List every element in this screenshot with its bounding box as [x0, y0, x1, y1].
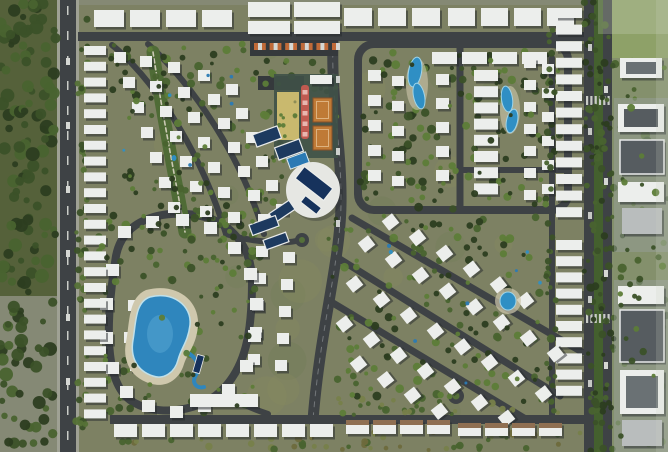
- bottom-townhouses-east-0-roof: [458, 423, 481, 428]
- forest-left-trees-140: [1, 413, 7, 419]
- left-road-lane-dashes-4: [67, 106, 69, 115]
- southwest-trees-51: [168, 276, 176, 284]
- northeast-trees-86: [449, 205, 456, 212]
- right-road-trees-100: [594, 145, 599, 150]
- southwest-ring-villas-6: [250, 298, 263, 310]
- forest-left-trees-50: [1, 89, 15, 103]
- forest-left-trees-28: [41, 42, 51, 52]
- left-townhouse-column-14: [84, 267, 106, 276]
- northeast-accent-trees-3: [373, 190, 378, 195]
- right-road-trees-99: [608, 425, 613, 430]
- northeast-trees-117: [459, 76, 467, 84]
- forest-left-trees-101: [21, 108, 28, 115]
- garden-pools-northwest-3: [168, 93, 172, 97]
- right-edge-trees-45: [632, 87, 637, 92]
- forest-left-trees-98: [21, 121, 28, 128]
- southwest-accent-trees-16: [246, 300, 250, 304]
- commercial-building-b: [294, 2, 340, 17]
- southeast-trees-39: [334, 376, 341, 383]
- east-verge-trees-15: [547, 164, 554, 171]
- east-townhouse-column-north-2: [556, 41, 582, 51]
- southwest-accent-trees-18: [219, 321, 224, 326]
- northeast-trees-52: [360, 114, 366, 120]
- right-road-trees-105: [594, 73, 599, 78]
- center-trees-13: [309, 59, 316, 66]
- southwest-accent-trees-8: [128, 246, 134, 252]
- northwest-trees-76: [163, 141, 169, 147]
- northeast-villas-col4-3: [524, 124, 536, 134]
- southwest-trees-67: [199, 295, 203, 299]
- parking-cars-orange-6: [301, 43, 305, 50]
- northeast-apartment-strip-2: [474, 102, 498, 113]
- forest-left-trees-108: [30, 439, 38, 447]
- northwest-accent-trees-19: [115, 63, 119, 67]
- southeast-accent-trees-2: [447, 394, 453, 400]
- forest-left-trees-133: [42, 168, 49, 175]
- cars-left-road-1: [66, 122, 70, 129]
- east-townhouse-column-north-12: [556, 207, 582, 217]
- parking-cars-white-0: [258, 43, 262, 50]
- northwest-trees-90: [239, 41, 246, 48]
- southwest-trees-66: [185, 371, 191, 377]
- crosswalk-right-road-north-0: [586, 96, 588, 105]
- left-townhouse-column-7: [84, 157, 106, 166]
- bottom-townhouses-west-7: [310, 424, 333, 437]
- northeast-trees-60: [465, 93, 472, 100]
- northwest-villas-col5-0: [226, 84, 238, 95]
- forest-left-trees-79: [40, 185, 51, 196]
- northwest-villas-col3-6: [228, 212, 240, 223]
- left-verge-trees-34: [72, 417, 80, 425]
- southwest-trees-69: [115, 404, 123, 412]
- southwest-ring-villas-5: [244, 268, 257, 280]
- cars-left-road-4: [66, 314, 70, 321]
- northeast-trees-48: [462, 122, 470, 130]
- northwest-accent-trees-23: [156, 221, 162, 227]
- bottom-edge-trees-39: [368, 446, 372, 450]
- southeast-trees-110: [534, 367, 539, 372]
- garden-pools-northwest-0: [206, 74, 209, 77]
- left-road-lane-dashes-8: [67, 206, 69, 215]
- left-townhouse-column-11: [84, 220, 106, 229]
- right-road-trees-82: [605, 98, 610, 103]
- right-road-trees-101: [608, 405, 614, 411]
- right-road-trees-18: [608, 115, 614, 121]
- southeast-trees-77: [404, 219, 408, 223]
- northwest-trees-29: [110, 212, 118, 220]
- forest-left-trees-60: [12, 161, 18, 167]
- left-road-lane-dashes-3: [67, 81, 69, 90]
- east-verge-trees-30: [546, 278, 550, 282]
- commercial-building-d: [294, 21, 340, 34]
- southeast-trees-99: [535, 320, 539, 324]
- garden-pools-southeast-2: [515, 269, 518, 272]
- southeast-trees-74: [500, 241, 507, 248]
- northwest-trees-62: [210, 51, 218, 59]
- garden-pools-northwest-1: [188, 163, 192, 167]
- garden-pools-southeast-6: [465, 301, 469, 305]
- southeast-trees-88: [340, 263, 349, 272]
- forest-left-trees-100: [40, 76, 53, 89]
- right-road-trees-20: [593, 21, 597, 25]
- crosswalk-right-road-north-1: [590, 96, 592, 105]
- northwest-accent-trees-21: [158, 203, 165, 210]
- cars-right-road-1-0: [588, 44, 592, 51]
- left-road-lane-dashes-9: [67, 231, 69, 240]
- northeast-trees-67: [539, 178, 544, 183]
- cars-left-road-5: [66, 378, 70, 385]
- east-verge-trees-24: [545, 220, 552, 227]
- southwest-accent-trees-0: [183, 350, 190, 357]
- northeast-villas-col4-0: [524, 58, 536, 68]
- northwest-villas-col5-3: [256, 156, 268, 167]
- southwest-ring-villas-3: [204, 222, 217, 234]
- garden-pools-southeast-4: [413, 339, 417, 343]
- northwest-trees-14: [127, 116, 131, 120]
- northeast-trees-49: [384, 59, 392, 67]
- southeast-trees-101: [457, 322, 464, 329]
- southeast-trees-42: [526, 254, 533, 261]
- northeast-apartment-strip-3: [474, 119, 498, 130]
- forest-left-trees-149: [48, 298, 57, 307]
- east-verge-trees-16: [546, 376, 551, 381]
- northeast-accent-trees-22: [501, 178, 506, 183]
- northwest-accent-trees-8: [122, 173, 128, 179]
- right-road-trees-0: [588, 65, 593, 70]
- forest-left-trees-2: [45, 99, 57, 111]
- right-road-trees-3: [599, 331, 607, 339]
- east-verge-trees-25: [545, 291, 549, 295]
- right-road-trees-93: [591, 162, 595, 166]
- east-townhouse-column-south-3: [556, 289, 582, 299]
- northwest-villas-col3-4: [208, 162, 220, 173]
- southeast-trees-104: [365, 319, 373, 327]
- bottom-edge-trees-37: [340, 447, 345, 452]
- forest-left-trees-122: [11, 349, 24, 362]
- right-road-trees-64: [605, 216, 611, 222]
- right-road-trees-58: [583, 145, 590, 152]
- play-sand-shrubs-7: [294, 100, 297, 103]
- forest-left-trees-109: [5, 125, 13, 133]
- southwest-ring-villas-12: [142, 400, 155, 412]
- midbottom-trees-29: [338, 401, 342, 405]
- northwest-trees-27: [187, 80, 195, 88]
- top-apartments-west-2: [166, 10, 196, 27]
- parking-cars-white-1: [274, 43, 278, 50]
- southwest-accent-trees-4: [232, 308, 237, 313]
- southeast-trees-113: [493, 311, 499, 317]
- northwest-accent-trees-22: [164, 223, 170, 229]
- northeast-trees-56: [458, 91, 464, 97]
- right-accent-trees-8: [651, 245, 656, 250]
- left-townhouse-column-20: [84, 362, 106, 371]
- top-apartments-east-1: [481, 8, 508, 26]
- running-track-marks-4: [303, 132, 308, 137]
- southeast-accent-trees-6: [380, 343, 385, 348]
- southeast-trees-37: [446, 272, 452, 278]
- southeast-accent-trees-12: [499, 234, 506, 241]
- cars-right-road-1-4: [588, 380, 592, 387]
- forest-left-trees-65: [2, 66, 11, 75]
- southwest-trees-82: [157, 248, 163, 254]
- forest-left-trees-78: [8, 42, 14, 48]
- forest-left-trees-124: [35, 269, 49, 283]
- right-road-trees-86: [605, 382, 610, 387]
- haze-right-edge: [656, 0, 668, 452]
- right-road-trees-76: [607, 264, 611, 268]
- northeast-villas-col3-4: [436, 170, 449, 181]
- left-road-lane-dashes-16: [67, 406, 69, 415]
- northeast-villas-col1-0: [368, 70, 381, 81]
- southeast-trees-112: [366, 228, 371, 233]
- left-townhouse-column-8: [84, 172, 106, 181]
- midbottom-trees-25: [453, 409, 457, 413]
- northwest-accent-trees-14: [203, 180, 209, 186]
- midbottom-trees-23: [551, 408, 557, 414]
- east-townhouse-column-north-0: [556, 8, 582, 18]
- east-townhouse-column-north-5: [556, 91, 582, 101]
- southwest-accent-trees-6: [99, 243, 106, 250]
- center-south-villas-col2-3: [277, 333, 289, 344]
- top-apartments-west-1: [130, 10, 160, 27]
- east-townhouse-column-south-5: [556, 321, 582, 331]
- southeast-trees-59: [331, 275, 335, 279]
- parking-cars-orange-0: [254, 43, 258, 50]
- east-townhouse-column-south-9: [556, 386, 582, 396]
- left-road-lane-dashes-17: [67, 431, 69, 440]
- southeast-trees-78: [452, 359, 457, 364]
- southwest-trees-38: [229, 269, 237, 277]
- northwest-trees-83: [199, 100, 206, 107]
- southeast-trees-35: [423, 225, 428, 230]
- southeast-accent-trees-13: [515, 377, 520, 382]
- right-road-trees-62: [584, 116, 588, 120]
- southeast-trees-11: [471, 237, 477, 243]
- southwest-trees-22: [211, 310, 216, 315]
- running-track-marks-2: [303, 111, 308, 116]
- southeast-trees-83: [348, 227, 354, 233]
- northeast-accent-trees-20: [508, 191, 513, 196]
- northwest-trees-51: [240, 47, 246, 53]
- southwest-accent-trees-14: [217, 388, 221, 392]
- southeast-trees-82: [368, 387, 373, 392]
- forest-left-trees-141: [14, 334, 28, 348]
- parking-cars-orange-1: [262, 43, 266, 50]
- midbottom-trees-11: [383, 407, 387, 411]
- southwest-trees-65: [140, 273, 147, 280]
- northwest-trees-52: [152, 187, 156, 191]
- bottom-townhouses-east-3-roof: [539, 423, 562, 428]
- cars-right-road-1-1: [588, 128, 592, 135]
- top-apartments-west-0: [94, 10, 124, 27]
- southwest-accent-trees-7: [203, 258, 209, 264]
- northwest-villas-col4-1: [208, 94, 220, 105]
- southeast-trees-97: [482, 321, 489, 328]
- northeast-accent-trees-13: [362, 126, 369, 133]
- east-verge-trees-12: [553, 374, 558, 379]
- northeast-villas-col4-2: [524, 102, 536, 112]
- top-apartments-mid-2: [412, 8, 440, 26]
- southwest-accent-trees-2: [159, 315, 165, 321]
- right-road-trees-77: [603, 318, 610, 325]
- right-edge-trees-37: [618, 274, 624, 280]
- southeast-accent-trees-16: [522, 253, 526, 257]
- northwest-villas-col2-2: [160, 106, 172, 117]
- parking-cars-orange-5: [293, 43, 297, 50]
- play-sand-shrubs-6: [279, 113, 283, 117]
- center-trees-20: [320, 68, 326, 74]
- northwest-accent-trees-6: [202, 144, 207, 149]
- left-road-lane-dashes-12: [67, 306, 69, 315]
- left-verge-trees-25: [76, 397, 83, 404]
- forest-left-trees-85: [18, 258, 24, 264]
- east-verge-trees-28: [549, 234, 555, 240]
- southeast-accent-trees-27: [407, 275, 413, 281]
- southwest-trees-76: [218, 238, 223, 243]
- right-road-trees-56: [609, 170, 615, 176]
- right-road-trees-52: [599, 402, 607, 410]
- southwest-trees-31: [117, 258, 124, 265]
- left-verge-trees-2: [74, 282, 81, 289]
- southeast-trees-111: [492, 383, 500, 391]
- east-townhouse-column-south-1: [556, 256, 582, 266]
- southeast-trees-23: [484, 379, 491, 386]
- southeast-accent-trees-11: [346, 368, 351, 373]
- bottom-edge-trees-21: [323, 444, 329, 450]
- northwest-trees-66: [194, 62, 203, 71]
- left-road-lane-dashes-10: [67, 256, 69, 265]
- lagoon-shallow: [147, 315, 173, 353]
- northeast-villas-col3-0: [436, 74, 449, 85]
- east-townhouse-column-north-11: [556, 191, 582, 201]
- midbottom-trees-8: [414, 404, 419, 409]
- northeast-trees-68: [390, 187, 394, 191]
- northwest-trees-5: [176, 170, 182, 176]
- right-road-trees-71: [591, 115, 598, 122]
- right-accent-trees-6: [633, 326, 639, 332]
- forest-left-trees-143: [27, 86, 33, 92]
- southeast-trees-81: [471, 356, 478, 363]
- northwest-accent-trees-20: [198, 181, 203, 186]
- east-townhouse-column-north-6: [556, 108, 582, 118]
- northeast-trees-6: [369, 56, 377, 64]
- southwest-accent-trees-15: [215, 286, 220, 291]
- northwest-trees-45: [187, 72, 194, 79]
- right-accent-trees-5: [640, 183, 644, 187]
- northwest-villas-col5-4: [266, 180, 278, 191]
- forest-left-trees-135: [6, 221, 16, 231]
- southeast-trees-36: [547, 334, 555, 342]
- forest-left-trees-5: [8, 4, 20, 16]
- left-townhouse-column-2: [84, 78, 106, 87]
- midbottom-trees-19: [407, 409, 412, 414]
- southeast-trees-10: [395, 384, 404, 393]
- northeast-inner-apartments-2: [492, 52, 517, 64]
- forest-left-trees-55: [52, 231, 59, 238]
- east-verge-trees-9: [546, 265, 551, 270]
- bottom-townhouses-west-2: [170, 424, 193, 437]
- northwest-trees-12: [133, 190, 138, 195]
- northeast-trees-113: [421, 109, 429, 117]
- cars-left-road-2: [66, 186, 70, 193]
- forest-left-trees-103: [15, 177, 24, 186]
- parking-cars-white-3: [305, 43, 309, 50]
- northeast-accent-trees-2: [495, 81, 499, 85]
- east-townhouse-column-north-9: [556, 157, 582, 167]
- right-road-trees-78: [592, 47, 598, 53]
- northwest-trees-42: [222, 46, 230, 54]
- right-accent-trees-21: [636, 295, 642, 301]
- northeast-trees-54: [459, 66, 464, 71]
- southwest-ring-villas-4: [228, 242, 241, 254]
- parking-cars-orange-8: [316, 43, 320, 50]
- forest-left-trees-52: [25, 100, 33, 108]
- cars-boulevard-2: [336, 220, 340, 227]
- northeast-trees-4: [417, 125, 424, 132]
- northwest-trees-63: [216, 81, 224, 89]
- southwest-ring-villas-0: [118, 226, 131, 238]
- left-road-lane-dashes-11: [67, 281, 69, 290]
- right-apartment-2-roof: [624, 109, 658, 127]
- northwest-trees-4: [200, 162, 205, 167]
- southeast-trees-100: [352, 413, 356, 417]
- forest-left-trees-35: [40, 126, 47, 133]
- bottom-edge-trees-35: [134, 439, 139, 444]
- right-edge-trees-21: [635, 257, 642, 264]
- northeast-accent-trees-16: [415, 184, 421, 190]
- masterplan-svg: [0, 0, 668, 452]
- northeast-trees-73: [544, 129, 552, 137]
- forest-left-trees-132: [24, 197, 30, 203]
- northwest-accent-trees-11: [245, 144, 250, 149]
- top-apartments-mid-0: [344, 8, 372, 26]
- right-road-trees-63: [594, 248, 601, 255]
- parking-cars-white-2: [289, 43, 293, 50]
- northwest-villas-col3-5: [218, 187, 230, 198]
- southwest-accent-trees-17: [251, 385, 255, 389]
- southeast-trees-30: [474, 379, 480, 385]
- southwest-accent-trees-19: [220, 260, 225, 265]
- northeast-trees-10: [438, 166, 442, 170]
- northwest-trees-24: [186, 106, 192, 112]
- northeast-villas-col5-2: [542, 112, 554, 122]
- southeast-trees-61: [411, 228, 416, 233]
- bottom-edge-trees-52: [384, 446, 389, 451]
- bottom-edge-trees-43: [427, 448, 431, 452]
- northwest-trees-60: [264, 58, 270, 64]
- northeast-accent-trees-0: [410, 62, 415, 67]
- bottom-edge-trees-3: [205, 443, 212, 450]
- right-edge-trees-34: [610, 63, 616, 69]
- northeast-trees-46: [392, 96, 396, 100]
- left-verge-trees-44: [82, 421, 88, 427]
- right-road-trees-44: [588, 407, 596, 415]
- running-track-marks-0: [303, 90, 308, 95]
- northeast-accent-trees-17: [488, 137, 495, 144]
- southwest-accent-trees-12: [104, 354, 108, 358]
- forest-left-trees-125: [48, 429, 57, 438]
- running-track-marks-3: [303, 122, 308, 127]
- northeast-trees-116: [503, 156, 509, 162]
- forest-left-trees-111: [35, 109, 46, 120]
- southeast-trees-18: [512, 357, 518, 363]
- midbottom-trees-26: [500, 406, 506, 412]
- northeast-trees-82: [542, 201, 549, 208]
- east-townhouse-column-north-3: [556, 58, 582, 68]
- northwest-villas-col2-0: [140, 56, 152, 67]
- cars-left-road-0: [66, 58, 70, 65]
- bottom-townhouses-mid-2-roof: [400, 420, 423, 425]
